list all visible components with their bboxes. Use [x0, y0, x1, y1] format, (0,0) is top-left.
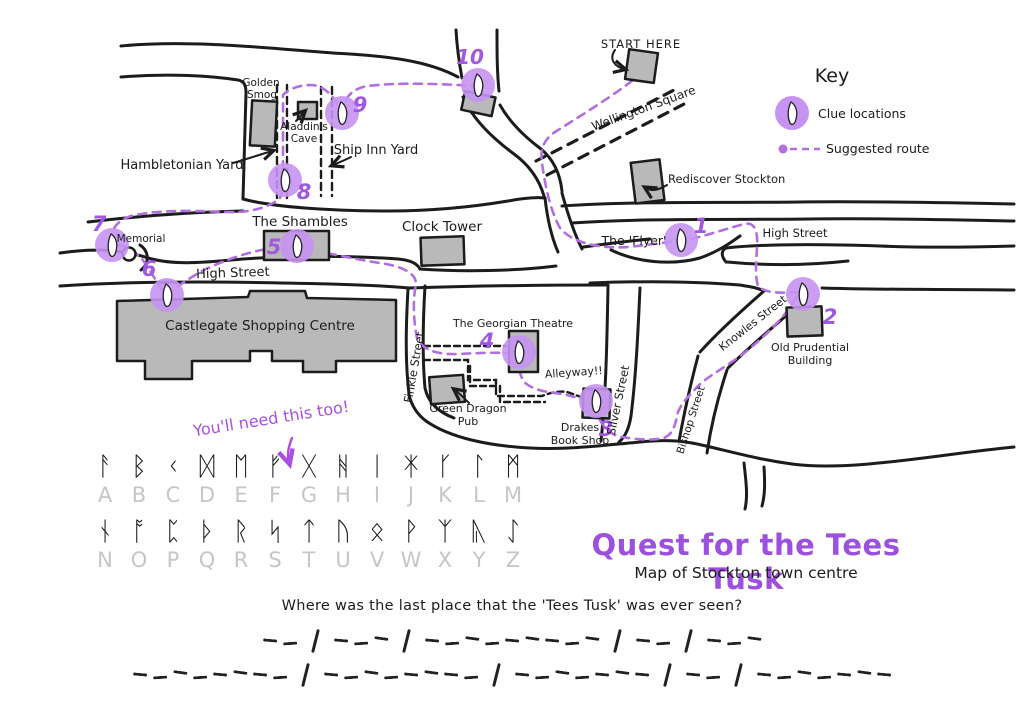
rune-cell-H: ᚻH: [326, 452, 360, 508]
key-route-label: Suggested route: [826, 141, 930, 156]
rune-letter: H: [326, 482, 360, 508]
rune-cell-L: ᛚL: [462, 452, 496, 508]
rune-letter: F: [258, 482, 292, 508]
answer-line-2: [0, 662, 1024, 688]
road-top-right-lower: [572, 219, 1014, 223]
answer-line-1: [0, 628, 1024, 654]
letter-blank-dash: [344, 675, 358, 679]
rune-glyph: ᛋ: [258, 517, 292, 547]
rune-glyph: ᛚ: [462, 452, 496, 482]
rune-letter: T: [292, 547, 326, 573]
rune-cell-Q: ᚦQ: [190, 517, 224, 573]
rune-cell-V: ᛟV: [360, 517, 394, 573]
high-street-right-label: High Street: [762, 226, 828, 240]
letter-blank-dash: [706, 675, 720, 679]
answer-word-blank: [683, 674, 723, 677]
rune-letter: B: [122, 482, 156, 508]
rune-letter: S: [258, 547, 292, 573]
golden-smog-label-2: Smog: [247, 89, 277, 101]
rune-glyph: ᚨ: [88, 452, 122, 482]
rune-glyph: ᚠ: [258, 452, 292, 482]
road-bottom-tail-2: [762, 467, 765, 506]
rune-letter: U: [326, 547, 360, 573]
letter-blank-dash: [133, 672, 147, 676]
letter-blank-dash: [233, 670, 247, 675]
answer-word-blank: [321, 674, 481, 677]
memorial-label: Memorial: [117, 233, 166, 245]
rune-letter: Z: [496, 547, 530, 573]
rune-glyph: ᚩ: [122, 517, 156, 547]
puzzle-question: Where was the last place that the 'Tees …: [0, 598, 1024, 614]
road-high-street-mid-upper: [420, 266, 556, 271]
clue-number-4: 4: [479, 329, 495, 353]
start-building: [625, 49, 658, 83]
letter-blank-dash: [263, 638, 277, 642]
letter-blank-dash: [555, 670, 569, 675]
rune-cell-O: ᚩO: [122, 517, 156, 573]
rune-letter: E: [224, 482, 258, 508]
answer-word-blank: [130, 674, 290, 677]
letter-blank-dash: [505, 638, 519, 642]
aladdins-cave-label-2: Cave: [291, 133, 317, 145]
castlegate-label: Castlegate Shopping Centre: [165, 318, 355, 334]
rune-glyph: ᛇ: [496, 517, 530, 547]
rune-letter: O: [122, 547, 156, 573]
letter-blank-dash: [193, 675, 207, 679]
letter-blank-dash: [757, 672, 771, 676]
letter-blank-dash: [444, 672, 458, 676]
word-separator-slash: [402, 629, 411, 653]
rune-glyph: ᛁ: [360, 452, 394, 482]
rune-row-2: ᚾNᚩOᛈPᚦQᚱRᛋSᛏTᚢUᛟVᚹWᛉXᚣYᛇZ: [88, 517, 530, 573]
rune-letter: Y: [462, 547, 496, 573]
letter-blank-dash: [817, 675, 831, 679]
rune-letter: R: [224, 547, 258, 573]
golden-smog-label-1: Golden: [242, 77, 279, 89]
clue-marker-2: [786, 277, 820, 311]
letter-blank-dash: [857, 670, 871, 675]
rune-cell-X: ᛉX: [428, 517, 462, 573]
word-separator-slash: [684, 629, 693, 653]
the-shambles-label: The Shambles: [251, 214, 348, 230]
drakes-label-1: Drakes: [561, 421, 599, 434]
rune-letter: V: [360, 547, 394, 573]
rune-row-1: ᚨAᛒBᚲCᛞDᛖEᚠFᚷGᚻHᛁIᛡJᚴKᛚLᛗM: [88, 452, 530, 508]
letter-blank-dash: [545, 638, 559, 642]
answer-word-blank: [633, 640, 673, 643]
letter-blank-dash: [535, 675, 549, 679]
rune-glyph: ᛖ: [224, 452, 258, 482]
letter-blank-dash: [404, 672, 418, 676]
clock-tower-label: Clock Tower: [402, 219, 483, 235]
rune-cell-F: ᚠF: [258, 452, 292, 508]
road-bottom-tail-1: [744, 463, 747, 509]
rune-letter: L: [462, 482, 496, 508]
clue-number-7: 7: [92, 212, 107, 236]
rune-letter: W: [394, 547, 428, 573]
letter-blank-dash: [565, 641, 579, 645]
rune-glyph: ᚹ: [394, 517, 428, 547]
word-separator-slash: [301, 663, 310, 687]
word-separator-slash: [492, 663, 501, 687]
key-clue-label: Clue locations: [818, 106, 906, 121]
rune-letter: X: [428, 547, 462, 573]
start-here-label: START HERE: [601, 37, 681, 51]
rune-cell-J: ᛡJ: [394, 452, 428, 508]
rune-letter: D: [190, 482, 224, 508]
answer-word-blank: [754, 674, 894, 677]
map-canvas: 1 2 3 4 5 6 7 8 9 10 Key Clue locations …: [0, 0, 1024, 723]
clock-tower-building: [421, 236, 465, 265]
rune-letter: G: [292, 482, 326, 508]
rune-alphabet: ᚨAᛒBᚲCᛞDᛖEᚠFᚷGᚻHᛁIᛡJᚴKᛚLᛗMᚾNᚩOᛈPᚦQᚱRᛋSᛏT…: [88, 452, 530, 582]
rune-cell-U: ᚢU: [326, 517, 360, 573]
rune-cell-T: ᛏT: [292, 517, 326, 573]
answer-word-blank: [512, 674, 652, 677]
rune-glyph: ᛡ: [394, 452, 428, 482]
rediscover-stockton-label: Rediscover Stockton: [668, 172, 785, 186]
hambletonian-yard-label: Hambletonian Yard: [121, 158, 244, 173]
clue-marker-4: [502, 335, 536, 369]
rune-glyph: ᚴ: [428, 452, 462, 482]
rune-cell-I: ᛁI: [360, 452, 394, 508]
map-subtitle: Map of Stockton town centre: [556, 564, 936, 582]
answer-word-blank: [260, 640, 300, 643]
rune-glyph: ᛏ: [292, 517, 326, 547]
letter-blank-dash: [747, 636, 761, 641]
clue-number-2: 2: [823, 305, 838, 329]
rune-glyph: ᚻ: [326, 452, 360, 482]
road-georgian-block-top: [409, 285, 608, 288]
green-dragon-label-1: Green Dragon: [429, 402, 506, 415]
rune-letter: M: [496, 482, 530, 508]
drakes-label-2: Book Shop: [551, 434, 610, 447]
word-separator-slash: [311, 629, 320, 653]
rune-cell-G: ᚷG: [292, 452, 326, 508]
clue-number-8: 8: [297, 180, 312, 204]
aladdins-cave-label-1: Aladdin's: [280, 121, 328, 133]
rune-glyph: ᛒ: [122, 452, 156, 482]
road-east-exit: [822, 288, 1014, 290]
rune-letter: P: [156, 547, 190, 573]
letter-blank-dash: [384, 675, 398, 679]
road-bend-southeast-2: [500, 105, 562, 191]
rune-cell-R: ᚱR: [224, 517, 258, 573]
green-dragon-label-2: Pub: [458, 415, 478, 428]
letter-blank-dash: [324, 672, 338, 676]
clue-number-6: 6: [142, 257, 157, 281]
rune-cell-S: ᛋS: [258, 517, 292, 573]
rune-cell-A: ᚨA: [88, 452, 122, 508]
rune-glyph: ᛗ: [496, 452, 530, 482]
rune-letter: K: [428, 482, 462, 508]
rune-cell-B: ᛒB: [122, 452, 156, 508]
road-high-street-lower: [60, 282, 409, 288]
rune-cell-W: ᚹW: [394, 517, 428, 573]
rune-glyph: ᚣ: [462, 517, 496, 547]
letter-blank-dash: [253, 672, 267, 676]
high-street-left-label: High Street: [196, 265, 270, 283]
rediscover-stockton-building: [631, 159, 665, 203]
clue-marker-6: [150, 278, 184, 312]
rune-glyph: ᛞ: [190, 452, 224, 482]
rune-glyph: ᛟ: [360, 517, 394, 547]
road-north-vertical-right: [497, 30, 499, 91]
rune-letter: I: [360, 482, 394, 508]
letter-blank-dash: [777, 675, 791, 679]
letter-blank-dash: [656, 641, 670, 645]
rune-cell-E: ᛖE: [224, 452, 258, 508]
letter-blank-dash: [464, 675, 478, 679]
rune-cell-N: ᚾN: [88, 517, 122, 573]
road-top-left-lower: [121, 75, 246, 199]
letter-blank-dash: [374, 636, 388, 641]
letter-blank-dash: [445, 641, 459, 645]
word-separator-slash: [734, 663, 743, 687]
hint-text: You'll need this too!: [191, 397, 351, 441]
old-prudential-label-2: Building: [788, 354, 833, 367]
letter-blank-dash: [354, 641, 368, 645]
letter-blank-dash: [595, 672, 609, 676]
clue-number-10: 10: [456, 45, 484, 69]
answer-word-blank: [704, 640, 764, 643]
letter-blank-dash: [273, 675, 287, 679]
rune-cell-M: ᛗM: [496, 452, 530, 508]
rune-glyph: ᚲ: [156, 452, 190, 482]
rune-cell-P: ᛈP: [156, 517, 190, 573]
clue-marker-10: [461, 68, 495, 102]
letter-blank-dash: [615, 670, 629, 675]
letter-blank-dash: [515, 672, 529, 676]
road-median-lower: [727, 261, 848, 265]
clue-number-9: 9: [353, 93, 368, 117]
rune-glyph: ᚾ: [88, 517, 122, 547]
key-title: Key: [815, 65, 849, 87]
rune-glyph: ᚷ: [292, 452, 326, 482]
letter-blank-dash: [283, 641, 297, 645]
rune-cell-K: ᚴK: [428, 452, 462, 508]
rune-letter: Q: [190, 547, 224, 573]
rune-letter: A: [88, 482, 122, 508]
letter-blank-dash: [465, 636, 479, 641]
letter-blank-dash: [153, 675, 167, 679]
letter-blank-dash: [877, 672, 891, 676]
rune-cell-Y: ᚣY: [462, 517, 496, 573]
golden-smog-building: [250, 100, 277, 146]
letter-blank-dash: [364, 670, 378, 675]
rune-glyph: ᚦ: [190, 517, 224, 547]
road-top-left-upper: [121, 44, 458, 77]
treasure-map-page: { "title": "Quest for the Tees Tusk", "s…: [0, 0, 1024, 723]
road-junction-down-1: [545, 198, 558, 252]
alleyway-label: Alleyway!!: [544, 364, 603, 381]
rune-glyph: ᛉ: [428, 517, 462, 547]
road-bishop-east: [707, 370, 727, 453]
green-dragon-building: [429, 375, 465, 404]
clue-number-5: 5: [267, 235, 282, 259]
road-median-upper: [722, 245, 1014, 262]
rune-glyph: ᚱ: [224, 517, 258, 547]
georgian-theatre-label: The Georgian Theatre: [452, 317, 573, 330]
letter-blank-dash: [727, 641, 741, 645]
rune-letter: J: [394, 482, 428, 508]
clue-marker-5: [280, 229, 314, 263]
key-clue-icon: [775, 96, 809, 130]
the-flyer-label: The 'Flyer': [601, 233, 667, 248]
ship-inn-arrow-icon: [333, 157, 351, 165]
letter-blank-dash: [837, 672, 851, 676]
rune-letter: N: [88, 547, 122, 573]
letter-blank-dash: [334, 638, 348, 642]
road-top-right-upper: [562, 202, 1014, 206]
map-title: Quest for the Tees Tusk: [556, 528, 936, 596]
rune-letter: C: [156, 482, 190, 508]
answer-word-blank: [331, 640, 391, 643]
old-prudential-label-1: Old Prudential: [771, 341, 849, 354]
ship-inn-yard-label: Ship Inn Yard: [334, 143, 418, 158]
rune-glyph: ᛈ: [156, 517, 190, 547]
key-route-dot-icon: [779, 145, 788, 154]
letter-blank-dash: [575, 675, 589, 679]
letter-blank-dash: [525, 636, 539, 641]
road-shambles-street: [243, 198, 545, 211]
clue-number-1: 1: [694, 214, 709, 238]
letter-blank-dash: [173, 670, 187, 675]
answer-word-blank: [422, 640, 602, 643]
road-high-right-south: [590, 282, 764, 291]
letter-blank-dash: [425, 638, 439, 642]
word-separator-slash: [613, 629, 622, 653]
letter-blank-dash: [636, 638, 650, 642]
start-here-arrow-icon: [612, 50, 624, 69]
letter-blank-dash: [707, 638, 721, 642]
letter-blank-dash: [213, 672, 227, 676]
map-key: Key Clue locations Suggested route: [775, 65, 930, 156]
rune-cell-C: ᚲC: [156, 452, 190, 508]
rune-cell-Z: ᛇZ: [496, 517, 530, 573]
letter-blank-dash: [686, 672, 700, 676]
word-separator-slash: [663, 663, 672, 687]
rune-glyph: ᚢ: [326, 517, 360, 547]
letter-blank-dash: [635, 672, 649, 676]
letter-blank-dash: [485, 641, 499, 645]
letter-blank-dash: [424, 670, 438, 675]
letter-blank-dash: [797, 670, 811, 675]
rune-cell-D: ᛞD: [190, 452, 224, 508]
letter-blank-dash: [585, 636, 599, 641]
